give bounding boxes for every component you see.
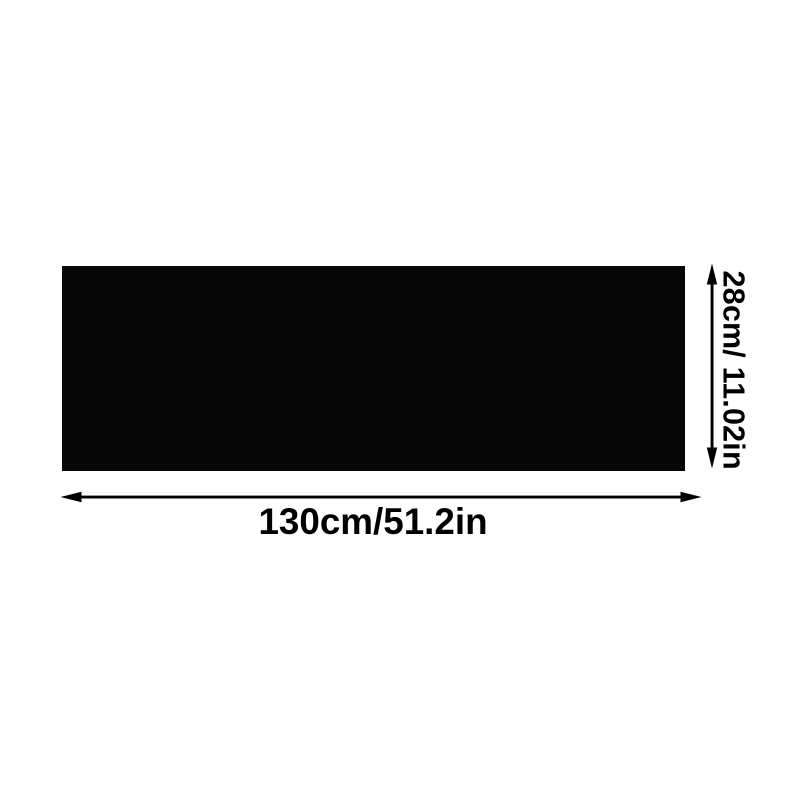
svg-text:130cm/51.2in: 130cm/51.2in	[258, 501, 487, 542]
svg-text:28cm/ 11.02in: 28cm/ 11.02in	[717, 271, 751, 470]
